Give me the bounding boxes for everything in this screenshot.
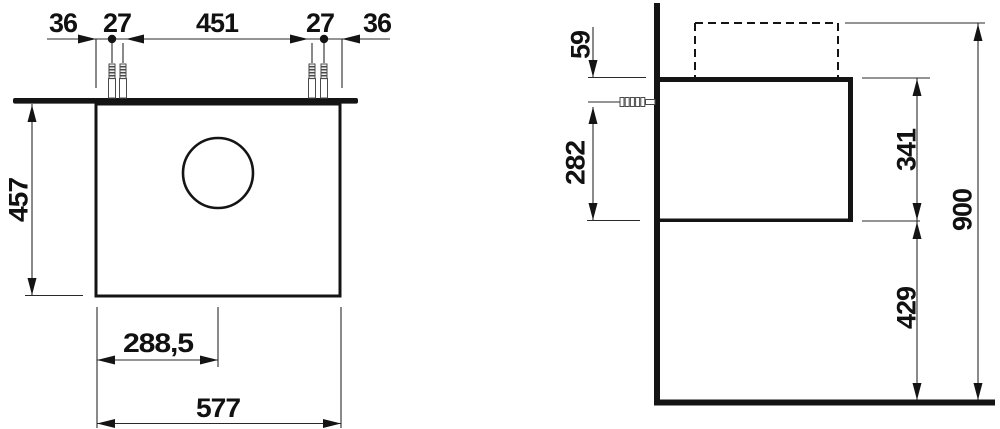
front-top-dimension: 36 27 451 27 36: [47, 8, 392, 88]
front-view: 36 27 451 27 36 457 288,5 577: [3, 8, 392, 428]
drawing-canvas: 36 27 451 27 36 457 288,5 577: [0, 0, 1000, 429]
side-cabinet-body: [660, 77, 853, 222]
front-height-dimension: 457: [3, 104, 83, 296]
side-screw-height-dimension: 282: [560, 107, 640, 221]
dim-label-left-screw: 27: [103, 8, 131, 38]
dim-label-screw-span: 451: [196, 8, 239, 38]
dim-label-floor-clearance: 429: [891, 286, 921, 329]
dim-label-total-width: 577: [196, 393, 240, 423]
technical-drawing: 36 27 451 27 36 457 288,5 577: [0, 0, 1000, 429]
front-cabinet-body: [96, 104, 340, 296]
dim-label-height: 457: [3, 178, 33, 222]
side-total-height-dimension: 900: [947, 23, 982, 400]
front-bottom-dimensions: 288,5 577: [97, 307, 341, 428]
side-body-height-dimension: 341 429: [862, 78, 930, 400]
dim-label-screw-height: 282: [560, 141, 590, 185]
side-view: 59 282 341 429 900: [560, 3, 995, 406]
side-top-gap-dimension: 59: [565, 27, 646, 78]
side-wall-bolt: [588, 98, 655, 107]
side-basin-dashed-outline: [695, 23, 838, 77]
dim-label-center-offset: 288,5: [123, 328, 194, 358]
front-cutout-circle: [183, 138, 253, 208]
dim-label-right-screw: 27: [306, 8, 334, 38]
dim-label-top-gap: 59: [565, 30, 595, 59]
dim-label-left-overhang: 36: [49, 8, 78, 38]
side-floor: [654, 400, 995, 406]
dim-label-right-overhang: 36: [363, 8, 392, 38]
dim-label-body-height: 341: [891, 128, 921, 171]
dim-label-total-height: 900: [947, 189, 977, 231]
side-wall: [654, 3, 660, 405]
front-hanger-bolts: [109, 64, 328, 98]
